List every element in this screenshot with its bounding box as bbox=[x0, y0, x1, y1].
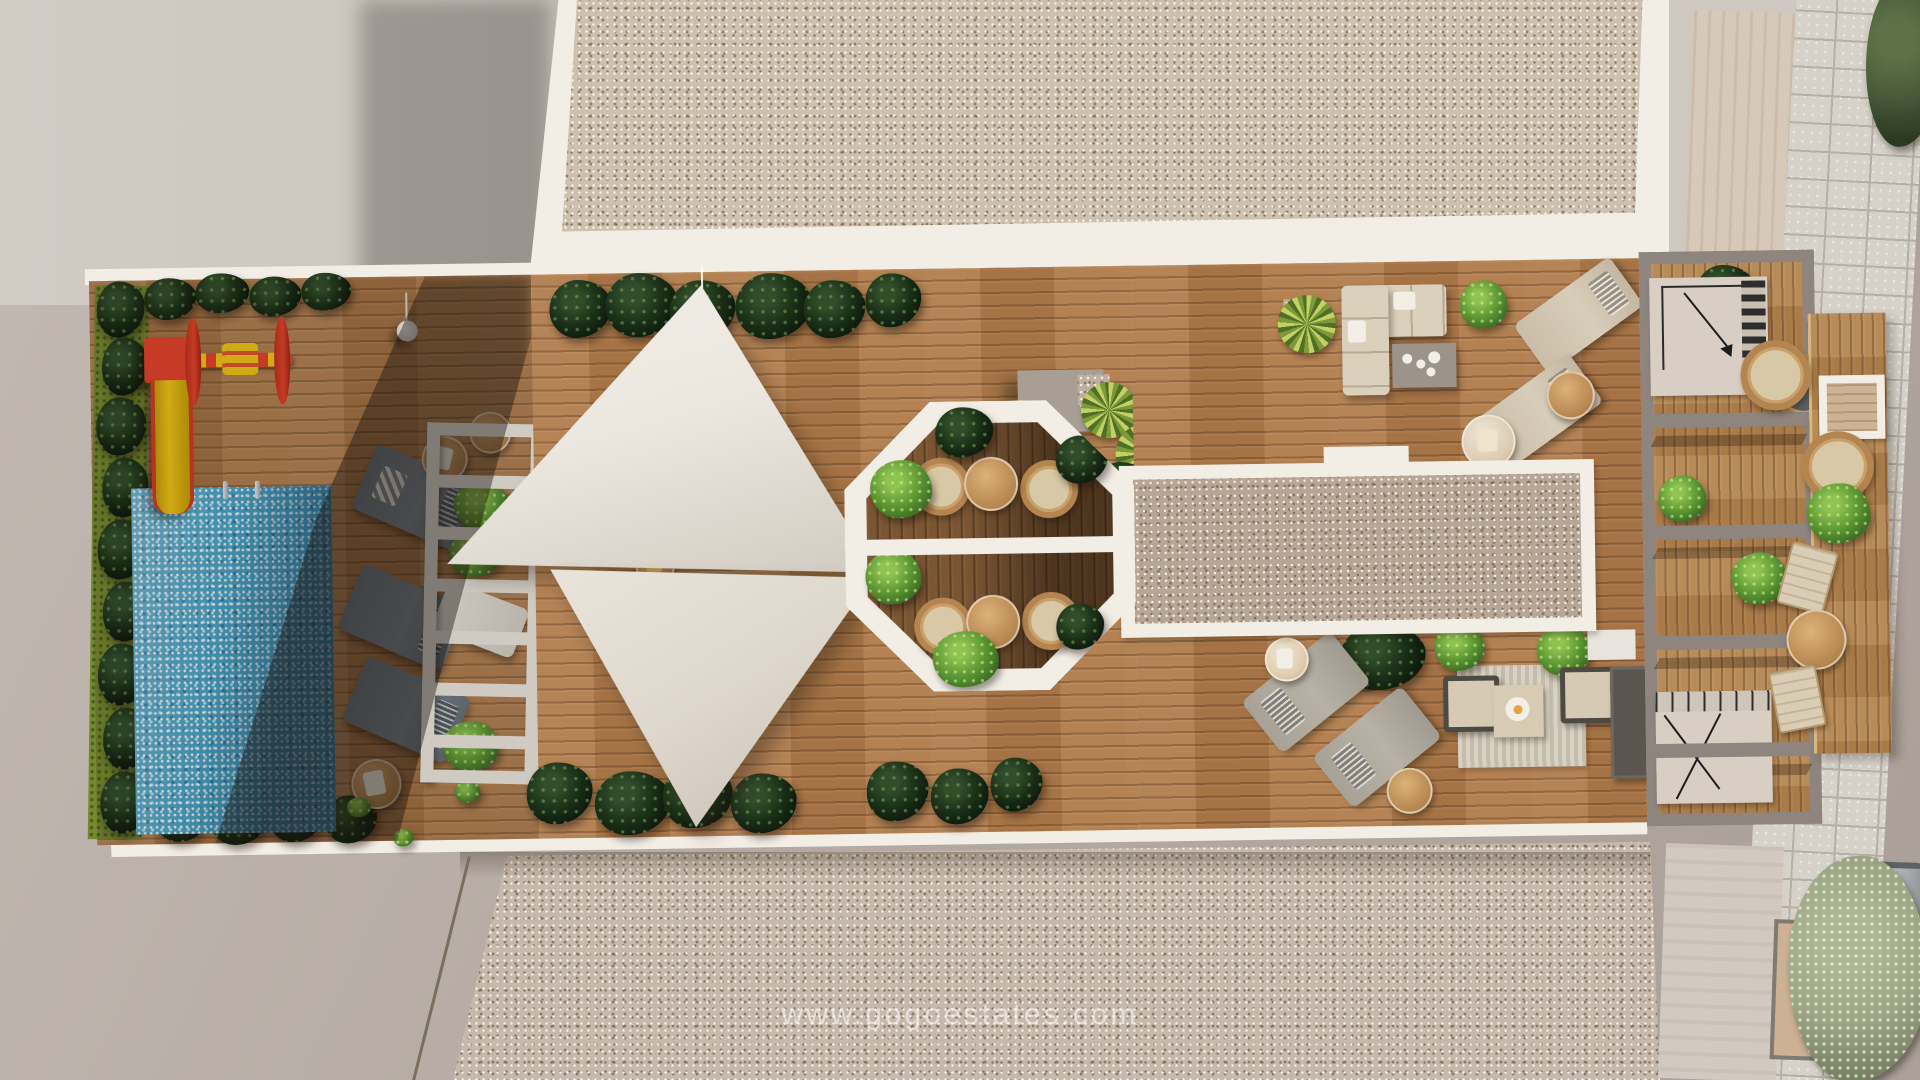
octagon-plant bbox=[932, 631, 999, 688]
hedge-plant-top bbox=[301, 272, 352, 311]
stair-rail bbox=[1661, 286, 1664, 370]
stair-rail bbox=[1661, 285, 1743, 288]
tree-bottom-right bbox=[1788, 856, 1920, 1080]
planter-plant-bottom bbox=[930, 768, 989, 825]
plant-bright bbox=[1459, 280, 1508, 329]
lounger-mesh bbox=[1587, 270, 1630, 316]
sail-rope bbox=[701, 266, 703, 288]
plant-bright bbox=[1658, 475, 1707, 522]
outdoor-kitchen-counter bbox=[1610, 666, 1650, 779]
pergola-beam bbox=[1646, 742, 1821, 759]
shade-sail-upper bbox=[431, 269, 896, 596]
hedge-plant bbox=[96, 397, 147, 456]
watermark-text: www.gogoestates.com bbox=[781, 998, 1138, 1032]
sun-lounger-beige bbox=[1513, 256, 1644, 374]
walkway-bottom-right bbox=[1658, 843, 1784, 1080]
sail-fabric bbox=[535, 549, 894, 844]
beam-shadow bbox=[1650, 434, 1807, 447]
sofa-pillow bbox=[1393, 292, 1415, 310]
coffee-table bbox=[1392, 343, 1457, 388]
lounger-mesh bbox=[1330, 742, 1377, 791]
plate bbox=[1402, 354, 1412, 364]
aerial-render-scene: www.gogoestates.com bbox=[0, 0, 1920, 1080]
side-table-round bbox=[1386, 767, 1433, 814]
hedge-plant bbox=[102, 337, 149, 396]
hedge-plant-top bbox=[144, 278, 197, 321]
decor-items bbox=[1477, 429, 1497, 451]
framed-low-table bbox=[1819, 375, 1886, 440]
spinner-disc bbox=[274, 316, 291, 404]
plate bbox=[1428, 351, 1440, 363]
magazine bbox=[1277, 648, 1293, 668]
beam-shadow bbox=[1654, 656, 1811, 669]
gravel-strip-notch bbox=[1324, 446, 1409, 477]
pergola-rung bbox=[420, 769, 538, 784]
lounge-square-table bbox=[1493, 685, 1544, 738]
hedge-plant-top bbox=[249, 276, 302, 317]
terrace bbox=[81, 243, 1902, 858]
armchair bbox=[1443, 675, 1500, 732]
shade-sail-lower bbox=[535, 549, 894, 844]
paver-square bbox=[1587, 629, 1635, 660]
sail-fabric bbox=[431, 269, 896, 596]
slide-top-platform bbox=[144, 337, 187, 384]
yucca-palm bbox=[1277, 295, 1336, 354]
stair-treads bbox=[1655, 690, 1771, 712]
slide-chute bbox=[150, 380, 194, 515]
pergola-rung bbox=[422, 682, 540, 697]
pergola-beam bbox=[1641, 412, 1816, 429]
hedge-plant bbox=[96, 281, 145, 338]
gravel-bottom-shadow bbox=[460, 852, 1650, 878]
plate bbox=[1416, 359, 1425, 368]
gravel-strip bbox=[1133, 473, 1582, 624]
sofa-pillow bbox=[1348, 320, 1366, 342]
pool-ladder-rail bbox=[223, 481, 228, 499]
pool-ladder-rail bbox=[255, 481, 260, 499]
grass-tuft bbox=[454, 781, 480, 803]
pergola-zone bbox=[1639, 250, 1822, 827]
fruit bbox=[1513, 705, 1522, 714]
pergola-beam bbox=[1643, 524, 1818, 541]
plate bbox=[1426, 367, 1435, 376]
lounger-mesh bbox=[1260, 687, 1307, 736]
gravel-strip-frame bbox=[1119, 459, 1596, 638]
building-shadow-band bbox=[360, 0, 550, 305]
planter-plant-bottom bbox=[990, 757, 1043, 812]
pergola-rung bbox=[421, 734, 539, 749]
building-edge-highlight bbox=[1655, 0, 1669, 285]
beam-shadow bbox=[1652, 546, 1809, 559]
armchair bbox=[1560, 667, 1617, 724]
hedge-plant-top bbox=[195, 273, 250, 314]
spinner-disc bbox=[185, 318, 202, 406]
spinner-seat bbox=[222, 343, 258, 376]
